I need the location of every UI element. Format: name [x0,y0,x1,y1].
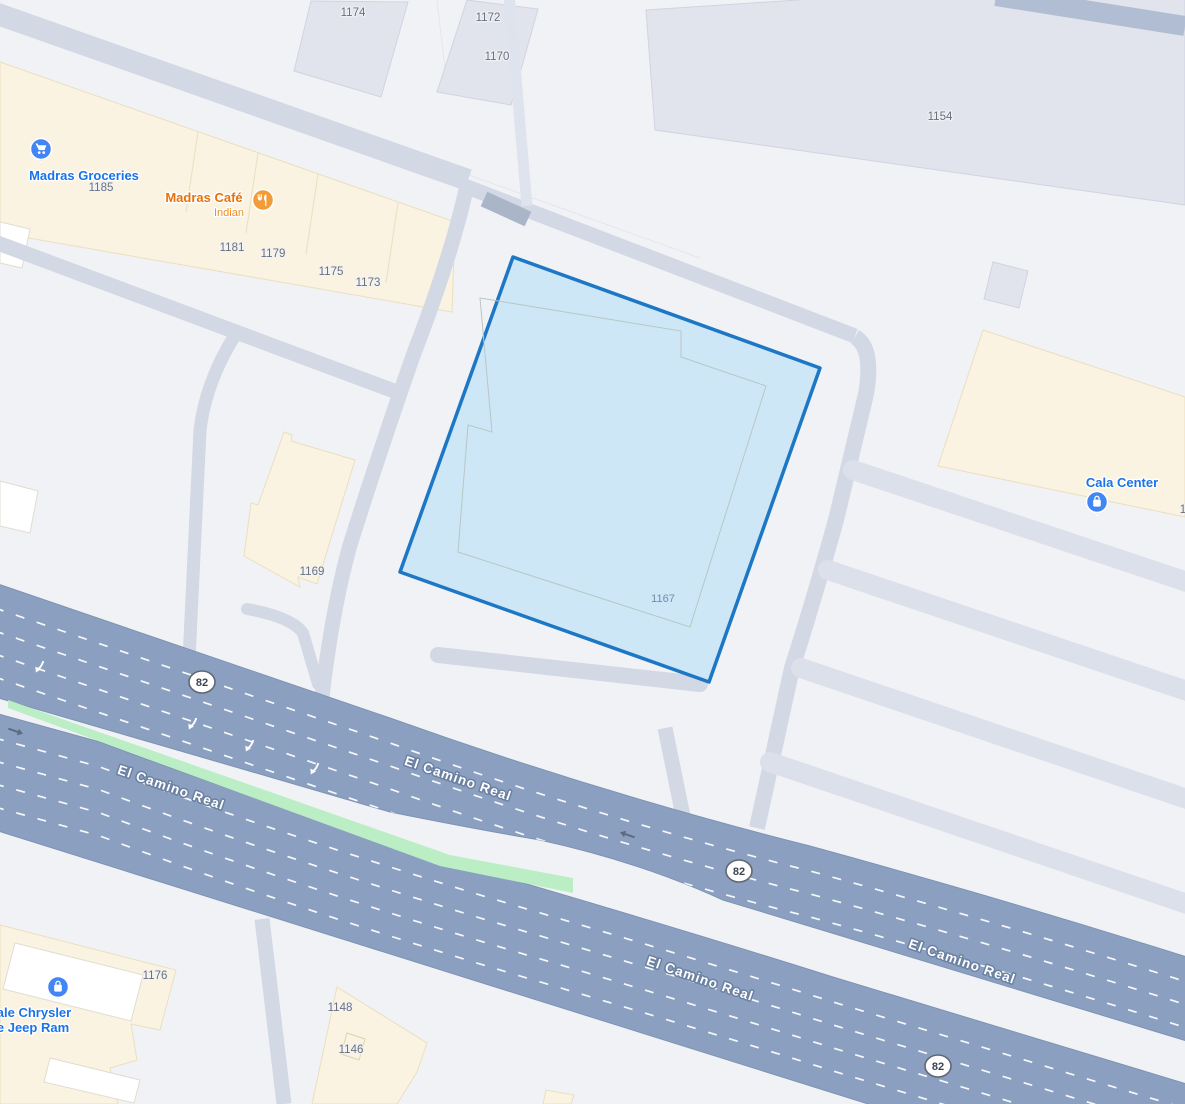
poi-label-chrysler-line2[interactable]: e Jeep Ram [0,1020,69,1035]
building-number: 1173 [356,277,381,289]
building-number: 1181 [220,242,245,254]
building-number: 1146 [339,1044,364,1056]
svg-text:82: 82 [932,1061,944,1073]
map-svg[interactable]: El Camino Real El Camino Real El Camino … [0,0,1185,1104]
poi-label-madras-cafe-subtitle[interactable]: Indian [214,207,244,219]
poi-label-madras-groceries[interactable]: Madras Groceries [29,168,139,183]
svg-text:82: 82 [733,866,745,878]
building-number: 1154 [928,111,953,123]
building-number: 1185 [89,182,114,194]
building-number: 1169 [300,566,325,578]
poi-label-cala-center[interactable]: Cala Center [1086,475,1158,490]
building-number: 1174 [341,7,366,19]
building-number: 1170 [485,51,510,63]
route-shield-82: 82 [925,1055,951,1077]
svg-text:82: 82 [196,677,208,689]
route-shield-82: 82 [189,671,215,693]
building-number: 1175 [319,266,344,278]
poi-label-chrysler-line1[interactable]: ale Chrysler [0,1005,71,1020]
building-number-selected-parcel: 1167 [651,593,675,605]
building-number: 1148 [328,1002,353,1014]
map-canvas[interactable]: El Camino Real El Camino Real El Camino … [0,0,1185,1104]
building-number: 1172 [476,12,501,24]
route-shield-82: 82 [726,860,752,882]
building-number: 1179 [261,248,286,260]
building-number: 1176 [143,970,168,982]
building-number-partial: 1 [1180,504,1185,516]
poi-label-madras-cafe[interactable]: Madras Café [165,190,242,205]
